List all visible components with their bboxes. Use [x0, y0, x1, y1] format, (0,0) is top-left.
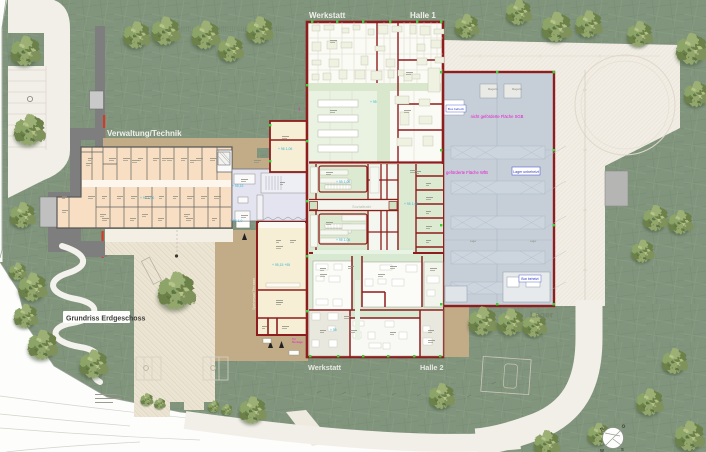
svg-text:+ 95: + 95 — [330, 328, 337, 332]
svg-text:Werkstatt: Werkstatt — [309, 11, 346, 20]
svg-text:geförderte Fläche WfB: geförderte Fläche WfB — [446, 170, 488, 175]
svg-text:Lager: Lager — [530, 240, 537, 243]
svg-text:+ 95 1,06: + 95 1,06 — [336, 238, 350, 242]
svg-text:Box beheizt: Box beheizt — [448, 107, 464, 111]
svg-text:+ 95 1,06: + 95 1,06 — [336, 180, 350, 184]
svg-text:+ 96 1,06: + 96 1,06 — [278, 147, 292, 151]
svg-text:Halle 1: Halle 1 — [410, 11, 436, 20]
svg-text:Lager unbeheizt: Lager unbeheizt — [513, 170, 539, 174]
svg-text:Halle 2: Halle 2 — [420, 363, 444, 372]
svg-text:W: W — [600, 448, 604, 452]
svg-text:Magazin: Magazin — [512, 87, 522, 91]
svg-text:Sozialtrakt: Sozialtrakt — [352, 204, 372, 209]
svg-text:Grundriss Erdgeschoss: Grundriss Erdgeschoss — [66, 316, 145, 323]
svg-text:+ 95: + 95 — [370, 100, 377, 104]
svg-text:Magazin: Magazin — [488, 87, 498, 91]
svg-text:Werkstatt: Werkstatt — [308, 363, 342, 372]
svg-text:+ 95 1,0: + 95 1,0 — [230, 219, 242, 223]
svg-text:Montage: Montage — [292, 340, 303, 344]
svg-text:nicht geförderte Fläche SGB: nicht geförderte Fläche SGB — [471, 114, 524, 119]
svg-text:S: S — [621, 447, 624, 452]
svg-text:Box beheizt: Box beheizt — [521, 277, 538, 281]
svg-text:+ 95 1,06: + 95 1,06 — [404, 202, 418, 206]
svg-text:+ 95,15 +95: + 95,15 +95 — [272, 263, 290, 267]
svg-text:⚕: ⚕ — [298, 107, 301, 113]
svg-text:Lager: Lager — [530, 310, 554, 320]
svg-text:Lager: Lager — [470, 240, 477, 243]
svg-text:Speisesaal Terrasse: Speisesaal Terrasse — [252, 278, 256, 310]
svg-text:+ 95,15: + 95,15 — [232, 184, 244, 188]
svg-text:Verwaltung/Technik: Verwaltung/Technik — [107, 129, 182, 138]
